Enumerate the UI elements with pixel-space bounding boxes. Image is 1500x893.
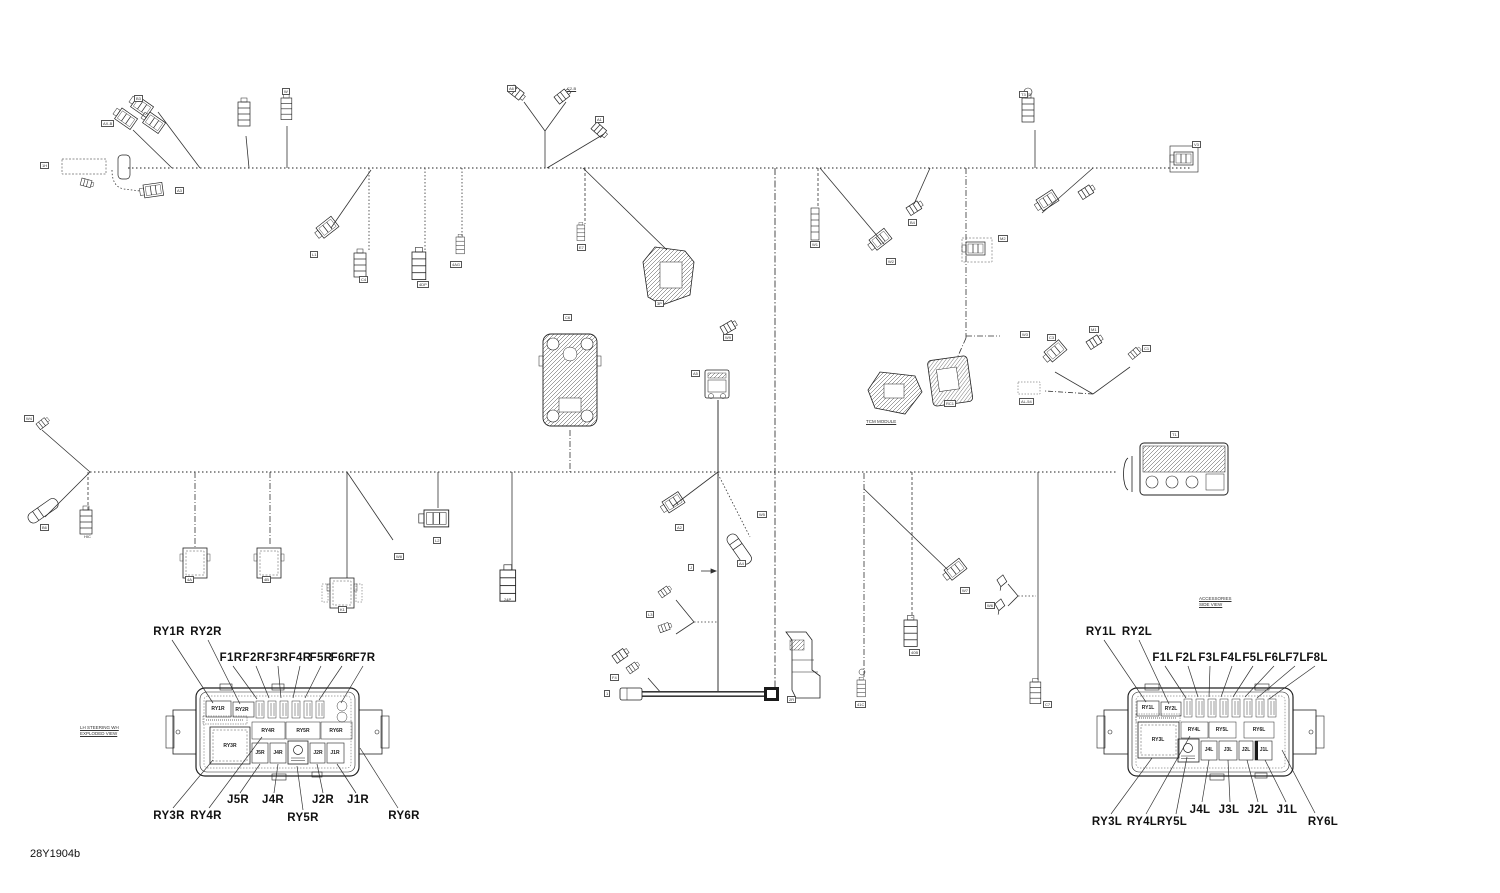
connector-code: W7 <box>960 587 970 594</box>
connector-code: A3 <box>175 187 184 194</box>
callout-ry6l: RY6L <box>1308 816 1338 828</box>
fusebox-slot-j2r: J2R <box>313 750 322 756</box>
callout-f2l: F2L <box>1175 652 1196 664</box>
callout-f8l: F8L <box>1306 652 1327 664</box>
connector-code: 40B <box>909 649 920 656</box>
callout-j4r: J4R <box>262 794 284 806</box>
connector-code: B6 <box>40 524 49 531</box>
connector-code: A4 <box>737 560 746 567</box>
connector-code: C3 <box>1047 334 1056 341</box>
connector-code: 2R <box>787 696 796 703</box>
fusebox-slot-ry3l: RY3L <box>1152 737 1165 743</box>
fusebox-slot-j1r: J1R <box>330 750 339 756</box>
connector-code: AX-B <box>101 120 114 127</box>
connector-code: W <box>282 88 290 95</box>
fusebox-slot-ry3r: RY3R <box>223 743 236 749</box>
connector-glyphs <box>26 85 1228 704</box>
callout-f2r: F2R <box>243 652 266 664</box>
connector-code: M2 <box>998 235 1008 242</box>
wiring-diagram-page: RY1RRY2RF1RF2RF3RF4RF5RF6RF7RRY3RRY4RJ5R… <box>0 0 1500 893</box>
connector-code: W1 <box>810 241 820 248</box>
fusebox-slot-j3l: J3L <box>1224 747 1233 753</box>
fusebox-slot-j2l: J2L <box>1242 747 1251 753</box>
connector-code: W8 <box>394 553 404 560</box>
connector-code: A2 <box>675 524 684 531</box>
callout-ry2l: RY2L <box>1122 626 1152 638</box>
fusebox-slot-ry5r: RY5R <box>296 728 309 734</box>
callout-ry1l: RY1L <box>1086 626 1116 638</box>
diagram-note: EXPLODED VIEW <box>80 731 117 737</box>
callout-j2l: J2L <box>1248 804 1269 816</box>
diagram-note: SIDE VIEW <box>1199 602 1222 608</box>
connector-code: B3 <box>134 95 143 102</box>
connector-code: C4 <box>359 276 368 283</box>
drawing-part-number: 28Y1904b <box>30 848 80 860</box>
connector-code: T1 <box>1170 431 1179 438</box>
connector-code: AL-54 <box>1019 398 1034 405</box>
callout-leader-lines <box>172 640 1315 814</box>
callout-f6l: F6L <box>1264 652 1285 664</box>
callout-f1l: F1L <box>1152 652 1173 664</box>
connector-code: B4 <box>908 219 917 226</box>
callout-f6r: F6R <box>331 652 354 664</box>
callout-ry4r: RY4R <box>190 810 221 822</box>
connector-code: 4AG <box>450 261 462 268</box>
callout-ry6r: RY6R <box>388 810 419 822</box>
connector-code: 4DP <box>417 281 429 288</box>
fusebox-slot-j5r: J5R <box>255 750 264 756</box>
diagram-note: TCM MODULE <box>866 419 896 425</box>
connector-code: 41C <box>855 701 866 708</box>
connector-code: J <box>688 564 694 571</box>
fusebox-slot-ry1r: RY1R <box>211 706 224 712</box>
callout-j2r: J2R <box>312 794 334 806</box>
connector-code: A5 <box>691 370 700 377</box>
connector-code: HIC <box>83 534 92 539</box>
connector-code: F4 <box>610 674 619 681</box>
connector-code: T3 <box>1019 91 1028 98</box>
callout-ry3l: RY3L <box>1092 816 1122 828</box>
connector-code: L3 <box>646 611 654 618</box>
callout-f7r: F7R <box>353 652 376 664</box>
callout-j3l: J3L <box>1219 804 1240 816</box>
callout-f4r: F4R <box>289 652 312 664</box>
connector-code: 1 <box>604 690 610 697</box>
connector-code: 4A <box>185 576 194 583</box>
callout-j1l: J1L <box>1277 804 1298 816</box>
connector-code: K1 <box>338 606 347 613</box>
connector-code: A6 <box>507 85 516 92</box>
connector-code: 1H <box>40 162 49 169</box>
connector-code: W9 <box>723 334 733 341</box>
callout-f5l: F5L <box>1242 652 1263 664</box>
connector-code: W6 <box>985 602 995 609</box>
callout-ry3r: RY3R <box>153 810 184 822</box>
harness-trunk-lines <box>90 168 1190 688</box>
connector-code: E7 <box>577 244 586 251</box>
callout-f3l: F3L <box>1198 652 1219 664</box>
callout-f7l: F7L <box>1285 652 1306 664</box>
callout-f1r: F1R <box>220 652 243 664</box>
fusebox-slot-ry4r: RY4R <box>261 728 274 734</box>
callout-ry4l: RY4L <box>1127 816 1157 828</box>
callout-ry1r: RY1R <box>153 626 184 638</box>
wiring-harness-drawing <box>0 0 1500 893</box>
callout-f4l: F4L <box>1220 652 1241 664</box>
connector-code: L1 <box>310 251 318 258</box>
fusebox-slot-ry4l: RY4L <box>1188 727 1201 733</box>
callout-f5r: F5R <box>310 652 333 664</box>
fusebox-slot-j1l: J1L <box>1260 747 1269 753</box>
connector-code: M1 <box>1089 326 1099 333</box>
connector-code: W4 <box>24 415 34 422</box>
connector-code: C1 <box>1142 345 1151 352</box>
connector-code: C2-B <box>566 86 577 91</box>
connector-code: C7 <box>1043 701 1052 708</box>
callout-j1r: J1R <box>347 794 369 806</box>
connector-code: 3P <box>655 300 664 307</box>
connector-code: A1 <box>595 116 604 123</box>
connector-code: L2 <box>433 537 441 544</box>
connector-code: RC1 <box>944 400 956 407</box>
fusebox-slot-ry6r: RY6R <box>329 728 342 734</box>
callout-f3r: F3R <box>266 652 289 664</box>
fusebox-slot-j4r: J4R <box>273 750 282 756</box>
callout-j4l: J4L <box>1190 804 1211 816</box>
connector-code: W2 <box>886 258 896 265</box>
fusebox-slot-ry2r: RY2R <box>235 707 248 713</box>
fusebox-slot-ry5l: RY5L <box>1216 727 1229 733</box>
connector-code: W5 <box>757 511 767 518</box>
callout-ry5l: RY5L <box>1157 816 1187 828</box>
connector-code: 24P <box>503 597 512 602</box>
fusebox-slot-ry2l: RY2L <box>1165 706 1178 712</box>
connector-code: 4B <box>262 576 271 583</box>
fusebox-slot-j4l: J4L <box>1205 747 1214 753</box>
connector-code: C6 <box>563 314 572 321</box>
callout-ry2r: RY2R <box>190 626 221 638</box>
callout-j5r: J5R <box>227 794 249 806</box>
fusebox-slot-ry6l: RY6L <box>1253 727 1266 733</box>
fusebox-slot-ry1l: RY1L <box>1142 705 1155 711</box>
callout-ry5r: RY5R <box>287 812 318 824</box>
connector-code: W3 <box>1020 331 1030 338</box>
connector-code: V3 <box>1192 141 1201 148</box>
